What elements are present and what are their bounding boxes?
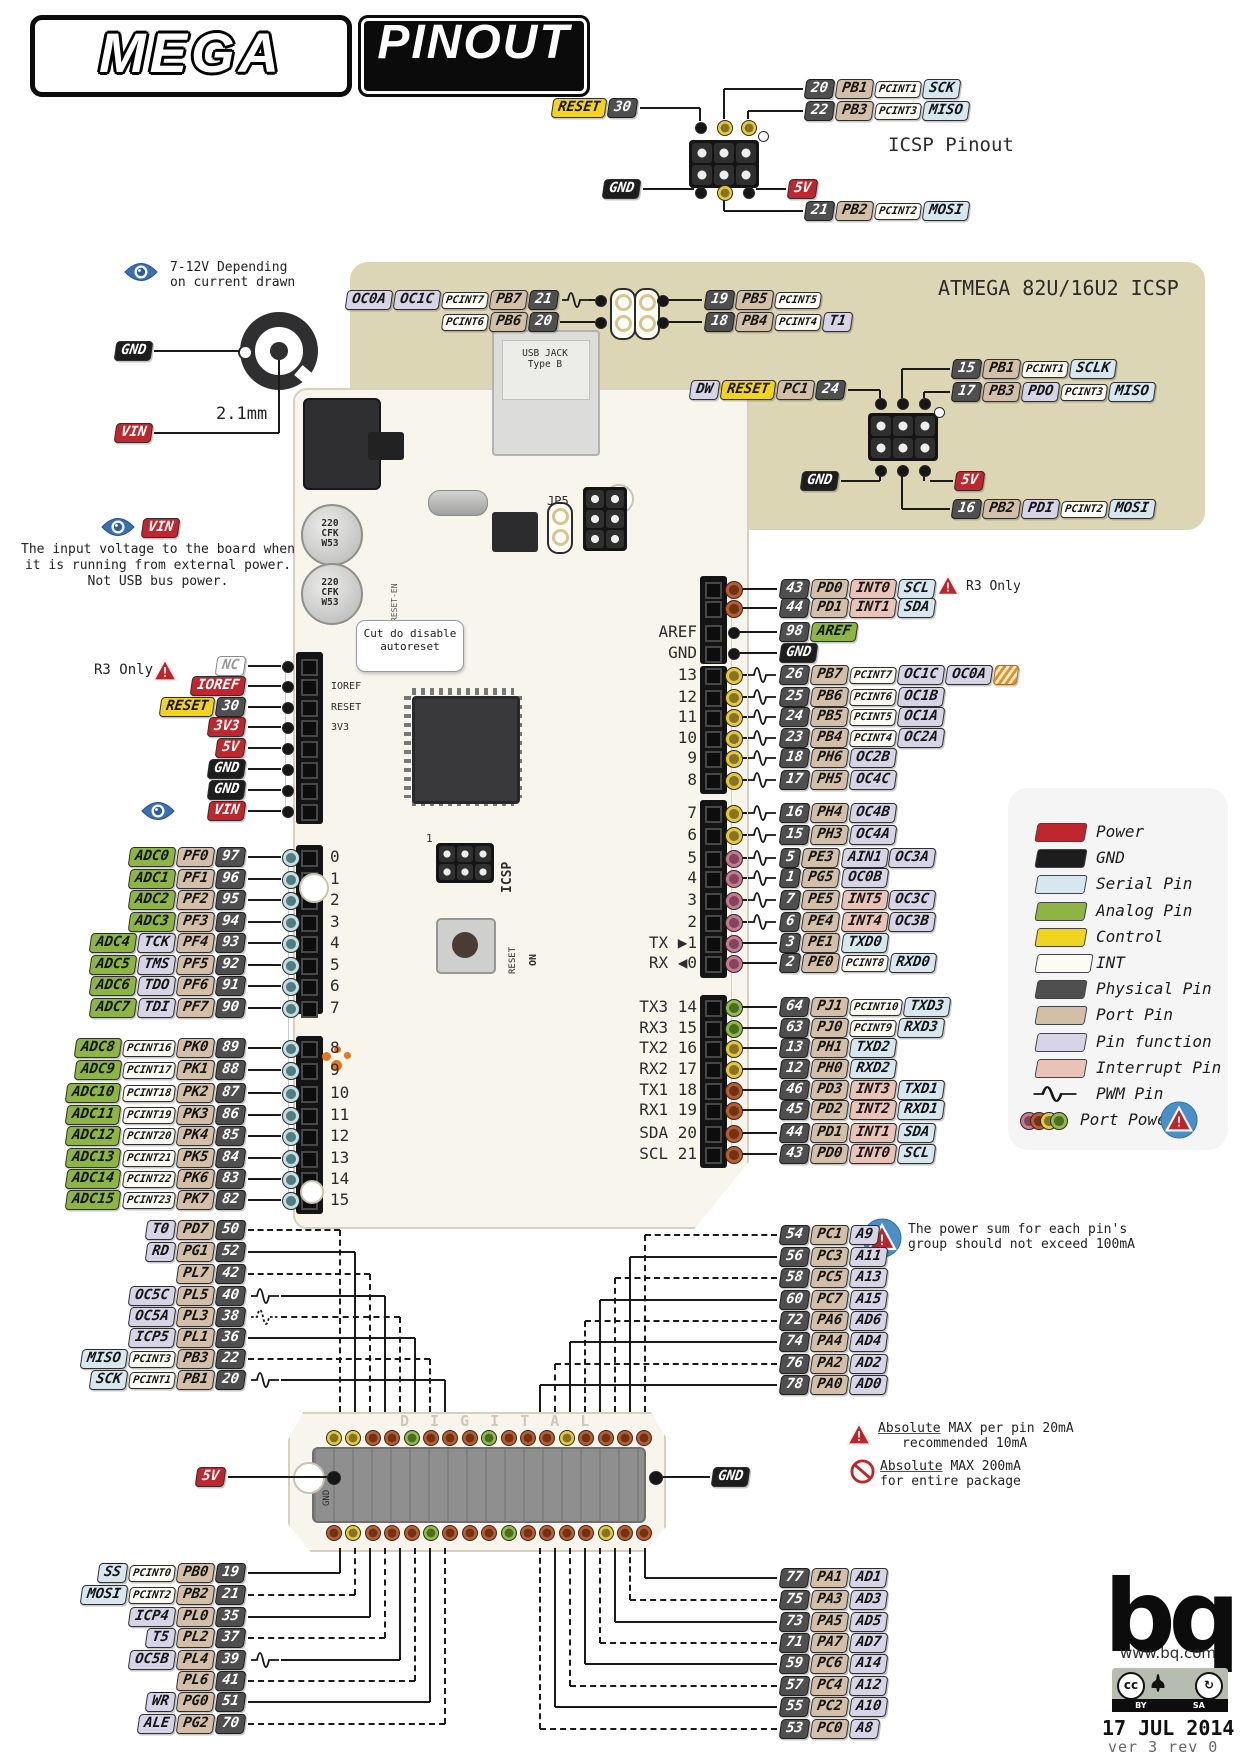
pin-dot [725,689,743,707]
pin-chip: 96 [215,869,247,889]
pin-chip: PA3 [809,1590,849,1610]
pwm-squiggle [747,869,777,891]
pin-chip: 38 [215,1307,247,1327]
header-pin [457,864,473,880]
pin1-marker [758,131,769,142]
pin-chip: VIN [113,423,153,443]
pin-chip: 97 [215,847,247,867]
header-pad [301,783,318,800]
pin-chip: GND [113,341,153,361]
pin-chip: PA5 [809,1612,849,1632]
pin-chip: 23 [779,728,811,748]
pin-chip: PB6 [488,312,528,332]
pin-chip: PA1 [809,1568,849,1588]
pin-chip: 91 [215,976,247,996]
pin-chip: PCINT1 [874,81,922,98]
board-pin-label: SDA 20 [639,1123,697,1142]
wire [248,1229,340,1231]
pwm-squiggle [747,708,777,730]
pin-chip: GND [601,179,641,199]
pin-chip: PL2 [175,1628,215,1648]
pin-chip: PE0 [801,953,841,973]
cc-sa-label: SA [1193,1699,1205,1712]
power-pin-row: IOREF [191,675,245,697]
wire [414,1338,416,1412]
board-pin-number: 3 [330,912,340,931]
digital-pin-row: 6PE4INT4OC3B [780,911,935,933]
digital-pin-row: 44PD1INT1SDA [780,597,935,619]
xmem-pin-row: 73PA5AD5 [780,1611,887,1633]
pin-chip: PL1 [175,1328,215,1348]
mega-pinout-diagram: MEGA PINOUT USB JACKType B Cut do disabl… [0,0,1240,1753]
crystal [428,490,488,516]
header-pin [692,165,712,185]
pin-chip: PB4 [734,312,774,332]
wire [724,88,803,90]
pin-chip: OC5B [128,1650,177,1670]
pin-chip: INT4 [840,912,889,932]
pwm-squiggle [250,1308,280,1330]
header-pin [714,165,734,185]
pin-dot [725,955,743,973]
pin-dot [725,1020,743,1038]
port-power-icon [992,665,1019,685]
pin-chip: A9 [849,1225,881,1245]
wire [248,1358,430,1360]
wire [444,1548,446,1724]
pin-chip: T1 [822,312,854,332]
pin-chip: 39 [215,1650,247,1670]
pin-chip: PD3 [809,1080,849,1100]
svg-text:!: ! [855,1430,863,1445]
pin-dot [282,978,300,996]
pin-chip: 73 [779,1612,811,1632]
pin-dot [282,785,294,797]
header-pin [692,143,712,163]
pin-chip: ADC14 [65,1169,122,1189]
pin-chip: A12 [849,1676,889,1696]
wire [248,1047,281,1049]
pin-dot [365,1430,381,1446]
pin-chip: 70 [215,1714,247,1734]
board-pin-label: 2 [687,912,697,931]
pin-chip: 20 [215,1370,247,1390]
header-pin [736,165,756,185]
board-pin-number: 9 [330,1060,340,1079]
pin-dot [501,1525,517,1541]
pin-chip: AD1 [849,1568,889,1588]
wire [879,390,881,398]
pin-chip: 12 [779,1059,811,1079]
digital-pin-row: 13PH1TXD2 [780,1037,896,1059]
pin-chip: RESET [159,697,216,717]
wire [248,726,281,728]
pin-chip: PCINT7 [441,292,489,309]
header-pin [586,530,604,548]
board-pin-label: 9 [687,748,697,767]
wire [281,1316,400,1318]
pin-chip: 20 [528,312,560,332]
board-pin-number: 4 [330,933,340,952]
pin-chip: OC3B [888,912,937,932]
digital-pin-row: 25PB6PCINT6OC1B [780,686,944,708]
pill-pin [639,315,656,332]
pin-chip: PB7 [488,290,528,310]
pin-chip: 19 [215,1563,247,1583]
pin-chip: AD6 [849,1311,889,1331]
xmem-pin-row: MOSIPCINT2PB221 [81,1584,245,1606]
pin-dot [657,295,669,307]
pin-chip: 24 [815,380,847,400]
wire [667,321,702,323]
mcu-pins [404,696,411,798]
pin-chip: 22 [215,1349,247,1369]
header-pad [301,936,318,953]
header-pad [301,1001,318,1018]
pill-pin [552,529,569,546]
capacitor-label: 220CFKW53 [316,578,344,608]
pin-chip: PCINT3 [874,103,922,120]
pin-chip: GND [711,1467,751,1487]
pin-dot [282,1128,300,1146]
wire [600,1299,777,1301]
atmega-title: ATMEGA 82U/16U2 ICSP [938,276,1179,300]
pin-chip: 55 [779,1697,811,1717]
pin-chip: 24 [779,707,811,727]
pin-dot [725,999,743,1017]
pin-chip: 35 [215,1607,247,1627]
pin-chip: PB5 [809,707,849,727]
pin-dot [282,1085,300,1103]
port-power-warning-icon: ! [1160,1101,1198,1143]
icsp-label: ICSP [500,862,515,893]
pin-chip: PB2 [981,499,1021,519]
board-pin-number: 8 [330,1038,340,1057]
header-pad [301,915,318,932]
pin-chip: PB3 [834,101,874,121]
pin-dot [326,1525,342,1541]
pin-dot [282,1107,300,1125]
header-pad [301,1129,318,1146]
wire [248,1135,281,1137]
digital-pin-row: 26PB7PCINT7OC1COC0A [780,664,1018,686]
board-pin-label: RESET [331,702,361,713]
pin-chip: 83 [215,1169,247,1189]
power-pin-row: VIN [208,800,245,822]
pin-chip: 82 [215,1190,247,1210]
board-pin-label: 5 [687,848,697,867]
abs-max-pin-warning: Absolute MAX per pin 20mA recommended 10… [878,1421,1074,1451]
wire [248,789,281,791]
wire [248,942,281,944]
pin-chip: PCINT0 [128,1565,176,1582]
wire [645,1234,777,1236]
pin-dot [617,1525,633,1541]
mounting-hole [300,1180,324,1204]
pin-chip: PK0 [175,1038,215,1058]
legend-swatch [1034,902,1087,921]
pin-chip: PA4 [809,1332,849,1352]
pin-chip: 89 [215,1038,247,1058]
supply-note: 7-12V Dependingon current drawn [170,260,295,290]
pin-chip: 52 [215,1242,247,1262]
pin-dot [919,398,931,410]
pin-chip: PB2 [834,201,874,221]
reset-button [436,918,496,974]
wire [444,1380,446,1412]
pin-dot [282,702,294,714]
analog-pin-row: ADC8PCINT16PK089 [75,1037,245,1059]
header-pad [705,1041,722,1058]
header-pad [705,625,722,642]
xmem-pin-row: T0PD750 [146,1219,245,1241]
header-pad [301,679,318,696]
header-pin [915,438,935,458]
pin-chip: PH1 [809,1038,849,1058]
pin-chip: OC0A [345,290,394,310]
pin-chip: 18 [704,312,736,332]
pwm-squiggle [747,666,777,688]
wire [248,1178,281,1180]
regulator [368,432,404,460]
power-pin-row: GND [115,340,152,362]
pin-chip: 5 [779,848,802,868]
xmem-pin-row: PL742 [177,1263,245,1285]
pin-chip: ADC8 [73,1038,122,1058]
wire [585,1663,777,1665]
xmem-pin-row: 56PC3A11 [780,1246,887,1268]
pin-chip: PCINT4 [774,314,822,331]
pin-chip: 43 [779,1144,811,1164]
legend-swatch [1034,954,1093,973]
xmem-pin-row: 58PC5A13 [780,1267,887,1289]
pin-chip: SCK [88,1370,128,1390]
header-grid [583,487,627,551]
wire [640,107,700,109]
wire [615,1621,777,1623]
pin-chip: AD7 [849,1633,889,1653]
wire [569,1548,571,1686]
header-pad [705,751,722,768]
pin-chip: PCINT2 [874,203,922,220]
pin-chip: 58 [779,1268,811,1288]
pin-chip: PCINT4 [849,730,897,747]
pin-chip: PB6 [809,687,849,707]
legend-swatch [1034,875,1087,894]
board-pin-number: 6 [330,976,340,995]
pin-chip: 53 [779,1719,811,1739]
wire [614,1548,616,1622]
pin-dot [725,870,743,888]
pin-dot [725,935,743,953]
gnd-vertical-label: GND [322,1490,332,1506]
legend-swatch [1034,928,1087,947]
wire [741,1153,777,1155]
pin-chip: OC0A [944,665,993,685]
xmem-pin-row: PL641 [177,1670,245,1692]
pin-chip: PD2 [809,1100,849,1120]
pin-chip: PH4 [809,803,849,823]
legend-label: Serial Pin [1096,874,1192,893]
pin-dot [695,122,707,134]
digital-pin-row: 3PE1TXD0 [780,932,887,954]
pin-chip: INT5 [840,890,889,910]
header-pin [893,438,913,458]
board-pin-number: 15 [330,1190,349,1209]
wire [741,1109,777,1111]
wire [248,1616,370,1618]
header-pad [705,773,722,790]
header-pad [301,850,318,867]
wire [741,1006,777,1008]
pin-chip: 75 [779,1590,811,1610]
pin-chip: 19 [704,290,736,310]
header-pad [705,1000,722,1017]
pin-dot [282,1171,300,1189]
xmem-pin-row: 71PA7AD7 [780,1632,887,1654]
pin-dot [725,667,743,685]
pin-chip: 5V [215,738,247,758]
pin-dot [282,1000,300,1018]
pin-chip: PK3 [175,1105,215,1125]
header-grid [689,140,759,188]
pin-chip: 20 [804,79,836,99]
wire [248,1199,281,1201]
power-pin-row: 5V [216,737,245,759]
pin-chip: 15 [951,359,983,379]
wire [569,1342,571,1412]
header-pad [705,1147,722,1164]
wire [539,1548,541,1729]
pin-chip: PG0 [175,1692,215,1712]
pin-dot [282,1192,300,1210]
legend-swatch [1034,1033,1087,1052]
digital-pin-row: 15PH3OC4A [780,824,896,846]
legend-label: PWM Pin [1096,1084,1163,1103]
pin-chip: 5V [787,179,819,199]
board-pin-label: TX2 16 [639,1038,697,1057]
pin-chip: 5V [954,471,986,491]
pin-chip: ADC7 [88,998,137,1018]
header-grid [868,413,938,461]
header-pad [301,762,318,779]
pin-dot [282,957,300,975]
pin-chip: PCINT5 [774,292,822,309]
pin-chip: ADC4 [88,933,137,953]
pin-chip: PG2 [175,1714,215,1734]
pin-chip: PB1 [834,79,874,99]
xmem-pin-row: ICP5PL136 [129,1327,245,1349]
pin-chip: OC0B [840,868,889,888]
xmem-pin-row: OC5CPL540 [129,1285,245,1307]
pin-chip: 5V [195,1467,227,1487]
legend-label: Interrupt Pin [1096,1058,1221,1077]
board-pin-label: 11 [678,707,697,726]
pin-chip: GND [779,643,819,663]
pin-chip: 21 [528,290,560,310]
analog-pin-row: ADC1PF196 [129,868,245,890]
header-pad [705,582,722,599]
pin-chip: PL7 [175,1264,215,1284]
svg-text:!: ! [944,580,951,594]
pin-chip: GND [206,780,246,800]
pin-chip: PK7 [175,1190,215,1210]
wire [724,210,803,212]
wire [399,1317,401,1412]
header-pin [606,490,624,508]
pin-dot [741,120,757,136]
wire [399,1548,401,1660]
wire [554,1364,556,1412]
pin-chip: T5 [145,1628,177,1648]
wire [339,1548,341,1573]
power-sum-warning: The power sum for each pin'sgroup should… [908,1222,1135,1252]
board-pin-number: 0 [330,847,340,866]
board-pin-label: 7 [687,803,697,822]
pin-chip: PCINT1 [1021,361,1069,378]
legend-label: Pin function [1096,1032,1212,1051]
pin-chip: RXD0 [888,953,937,973]
pin-chip: PB7 [809,665,849,685]
pin-chip: ICP4 [128,1607,177,1627]
mcu-pins [412,688,514,695]
wire [339,1230,341,1412]
pin-chip: PF7 [175,998,215,1018]
pin-dot [501,1430,517,1446]
wire [248,964,281,966]
wire [723,200,725,211]
header-pad [705,956,722,973]
icsp-pin-row: 22PB3PCINT3MISO [805,100,969,122]
wire [281,1295,385,1297]
digital-pin-row: GND [780,642,817,664]
wire [248,1637,385,1639]
pin-chip: PCINT7 [849,667,897,684]
pin-chip: SCL [896,1144,936,1164]
wire [644,1548,646,1578]
pin-chip: AD0 [849,1375,889,1395]
pwm-squiggle [250,1287,280,1309]
pin-chip: OC2B [849,748,898,768]
pin-chip: RXD1 [896,1100,945,1120]
pin-chip: 45 [779,1100,811,1120]
wire [741,1027,777,1029]
header-pad [705,806,722,823]
pin-chip: PB3 [981,382,1021,402]
wire [741,1047,777,1049]
board-pin-number: 13 [330,1148,349,1167]
pin-chip: ADC9 [73,1060,122,1080]
pin-chip: 36 [215,1328,247,1348]
pin-dot [725,892,743,910]
header-pad [705,893,722,910]
wire [841,480,880,482]
board-pin-number: 2 [330,890,340,909]
pin-chip: PCINT5 [849,709,897,726]
wire [930,480,953,482]
wire [281,1379,445,1381]
board-pin-label: 8 [687,770,697,789]
board-pin-label: 12 [678,687,697,706]
wire [248,985,281,987]
icsp-pin-row: 17PB3PDOPCINT3MISO [952,381,1155,403]
pin-dot [725,709,743,727]
pwm-squiggle [1032,1085,1078,1107]
wire [354,1548,356,1595]
pin-dot [725,1125,743,1143]
warning-icon: ! [936,574,960,600]
pin-chip: MOSI [922,201,971,221]
